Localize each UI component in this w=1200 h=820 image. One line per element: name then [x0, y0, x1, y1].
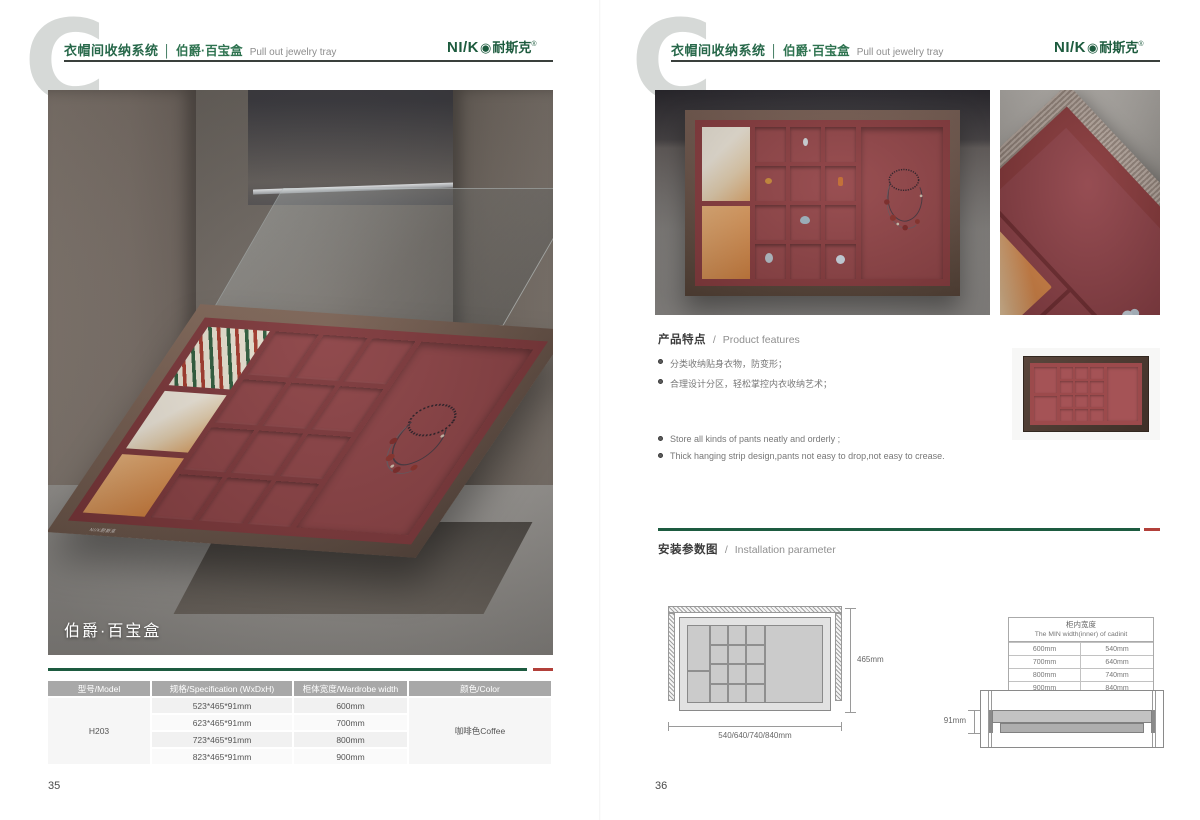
installation-title-cn: 安装参数图 — [658, 544, 718, 556]
inner-width: 540mm — [1081, 643, 1153, 655]
logo-text-cn: 耐斯克 — [492, 37, 531, 56]
bullet-icon — [658, 453, 663, 458]
inner-width: 640mm — [1081, 656, 1153, 668]
header-rule — [64, 60, 553, 62]
section-rule-green — [48, 668, 527, 671]
tray-corner-photo — [1000, 90, 1160, 315]
page-number-left: 35 — [48, 780, 60, 792]
feature-text: Thick hanging strip design,pants not eas… — [670, 451, 945, 461]
compartment-grid — [1060, 367, 1104, 421]
product-thumbnail — [1012, 348, 1160, 440]
section-rule-green — [658, 528, 1140, 531]
tray-profile — [992, 710, 1152, 723]
features-title-cn: 产品特点 — [658, 334, 706, 346]
section-rule-red — [1144, 528, 1160, 531]
feature-text: Store all kinds of pants neatly and orde… — [670, 434, 840, 444]
wardrobe-photo: NI/K耐斯克 伯爵·百宝盒 — [48, 90, 553, 655]
catalog-spread: C 衣帽间收纳系统 │ 伯爵·百宝盒 Pull out jewelry tray… — [0, 0, 1200, 820]
header-separator: │ — [771, 44, 779, 58]
dimension-tick — [845, 608, 856, 609]
feature-item: Thick hanging strip design,pants not eas… — [658, 451, 945, 461]
col-header-width: 柜体宽度/Wardrobe width — [294, 681, 407, 696]
table-header-en: The MIN width(inner) of cadinit — [1009, 630, 1153, 639]
logo-text: NI/K — [447, 39, 479, 56]
width-cell: 900mm — [294, 749, 407, 764]
col-header-color: 颜色/Color — [409, 681, 551, 696]
thumbnail-tray-interior — [1030, 363, 1142, 425]
logo-o-icon: ◉ — [480, 40, 491, 56]
table-header-cn: 柜内宽度 — [1009, 620, 1153, 630]
hatched-cabinet-top — [668, 606, 842, 613]
feature-item: 分类收纳贴身衣物，防变形； — [658, 357, 832, 370]
dimension-line — [850, 608, 851, 712]
photo-vignette — [655, 90, 990, 315]
tray-interior-outline — [687, 625, 823, 703]
hatched-cabinet-side — [835, 613, 842, 701]
sideview-diagram — [980, 690, 1164, 748]
registered-mark: ® — [1138, 41, 1143, 48]
spec-table: 型号/Model 规格/Specification (WxDxH) 柜体宽度/W… — [48, 681, 553, 764]
page-header: 衣帽间收纳系统 │ 伯爵·百宝盒 Pull out jewelry tray — [64, 40, 336, 59]
feature-item: 合理设计分区，轻松掌控内衣收纳艺术； — [658, 377, 832, 390]
logo-o-icon: ◉ — [1087, 40, 1098, 56]
registered-mark: ® — [531, 41, 536, 48]
product-name-en: Pull out jewelry tray — [857, 47, 944, 58]
width-cell: 800mm — [294, 732, 407, 747]
bullet-icon — [658, 436, 663, 441]
bullet-icon — [658, 379, 663, 384]
brand-logo: NI/K ◉ 耐斯克 ® — [447, 37, 537, 56]
title-separator: / — [713, 334, 716, 346]
photo-vignette — [48, 90, 553, 655]
dimension-tick — [968, 733, 980, 734]
page-seam — [599, 0, 601, 820]
dimension-tick — [841, 722, 842, 731]
series-title: 衣帽间收纳系统 — [64, 40, 159, 59]
page-header: 衣帽间收纳系统 │ 伯爵·百宝盒 Pull out jewelry tray — [671, 40, 943, 59]
min-width-table: 柜内宽度 The MIN width(inner) of cadinit 600… — [1008, 617, 1154, 695]
product-name-en: Pull out jewelry tray — [250, 47, 337, 58]
logo-text: NI/K — [1054, 39, 1086, 56]
features-title-en: Product features — [723, 334, 800, 346]
depth-dimension-label: 465mm — [857, 655, 884, 664]
installation-title: 安装参数图 / Installation parameter — [658, 541, 836, 557]
series-title: 衣帽间收纳系统 — [671, 40, 766, 59]
model-value: H203 — [48, 698, 150, 764]
inner-width: 740mm — [1081, 669, 1153, 681]
col-header-model: 型号/Model — [48, 681, 150, 696]
feature-text: 合理设计分区，轻松掌控内衣收纳艺术； — [670, 377, 832, 390]
features-title: 产品特点 / Product features — [658, 331, 800, 347]
dimension-tick — [845, 712, 856, 713]
hatched-cabinet-side — [668, 613, 675, 701]
feature-item: Store all kinds of pants neatly and orde… — [658, 434, 945, 444]
dimension-line — [974, 710, 975, 734]
scarf-compartments — [1034, 367, 1057, 421]
thumbnail-tray-frame — [1023, 356, 1149, 432]
logo-text-cn: 耐斯克 — [1099, 37, 1138, 56]
title-separator: / — [725, 544, 728, 556]
photo-caption: 伯爵·百宝盒 — [64, 617, 161, 641]
photo-vignette — [1000, 90, 1160, 315]
dimension-tick — [668, 722, 669, 731]
height-dimension-label: 91mm — [940, 716, 966, 725]
features-list-cn: 分类收纳贴身衣物，防变形； 合理设计分区，轻松掌控内衣收纳艺术； — [658, 357, 832, 390]
brand-logo: NI/K ◉ 耐斯克 ® — [1054, 37, 1144, 56]
feature-text: 分类收纳贴身衣物，防变形； — [670, 357, 787, 370]
spec-cell: 823*465*91mm — [152, 749, 292, 764]
table-row: 700mm 640mm — [1009, 655, 1153, 668]
width-cell: 700mm — [294, 715, 407, 730]
product-name-cn: 伯爵·百宝盒 — [783, 40, 850, 59]
table-row: 800mm 740mm — [1009, 668, 1153, 681]
color-value: 咖啡色Coffee — [409, 698, 551, 764]
spec-cell: 623*465*91mm — [152, 715, 292, 730]
width-dimension-label: 540/640/740/840mm — [668, 731, 842, 740]
wardrobe-width: 700mm — [1009, 656, 1081, 668]
spec-cell: 523*465*91mm — [152, 698, 292, 713]
dimension-tick — [968, 710, 980, 711]
left-compartment — [688, 626, 711, 702]
width-cell: 600mm — [294, 698, 407, 713]
header-rule — [671, 60, 1160, 62]
bullet-icon — [658, 359, 663, 364]
section-rule-red — [533, 668, 553, 671]
features-list-en: Store all kinds of pants neatly and orde… — [658, 434, 945, 461]
topview-diagram — [668, 606, 842, 714]
header-separator: │ — [164, 44, 172, 58]
spec-cell: 723*465*91mm — [152, 732, 292, 747]
installation-title-en: Installation parameter — [735, 544, 836, 556]
open-compartment — [1107, 367, 1138, 421]
product-name-cn: 伯爵·百宝盒 — [176, 40, 243, 59]
min-width-table-header: 柜内宽度 The MIN width(inner) of cadinit — [1009, 618, 1153, 642]
col-header-spec: 规格/Specification (WxDxH) — [152, 681, 292, 696]
wardrobe-width: 600mm — [1009, 643, 1081, 655]
tray-topview-photo — [655, 90, 990, 315]
tray-body-profile — [1000, 723, 1144, 733]
tray-frame-outline — [679, 617, 831, 711]
page-number-right: 36 — [655, 780, 667, 792]
wardrobe-width: 800mm — [1009, 669, 1081, 681]
compartment-grid — [711, 626, 766, 702]
open-compartment — [766, 626, 822, 702]
table-row: 600mm 540mm — [1009, 642, 1153, 655]
dimension-line — [668, 726, 842, 727]
